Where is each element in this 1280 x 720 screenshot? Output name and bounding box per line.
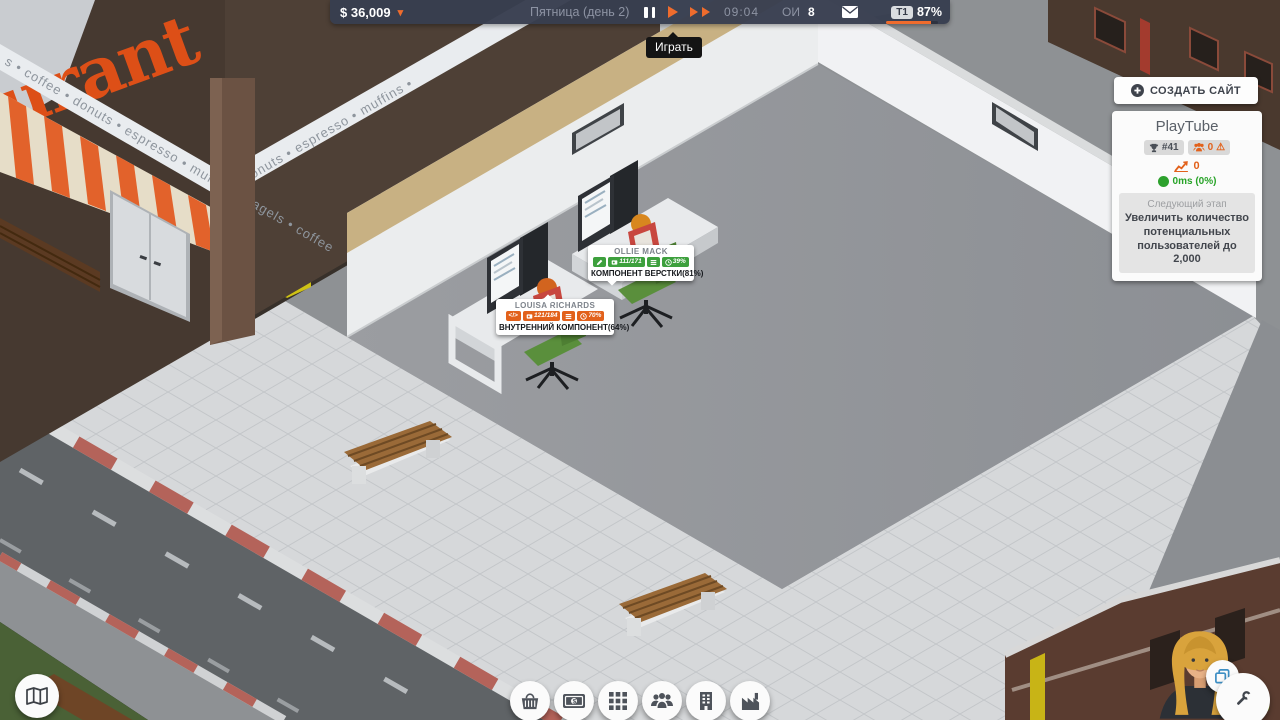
create-site-button[interactable]: СОЗДАТЬ САЙТ xyxy=(1114,77,1258,104)
users-badge: 0 ⚠ xyxy=(1188,140,1231,155)
tier-indicator[interactable]: T1 87% xyxy=(891,0,942,24)
tooltip-arrow xyxy=(668,32,678,37)
code-icon: </> xyxy=(506,311,521,321)
plus-circle-icon xyxy=(1131,84,1144,97)
shop-basket-button[interactable] xyxy=(510,681,550,720)
team-icon xyxy=(650,692,674,710)
building-icon xyxy=(697,691,715,711)
speed-clock-badge: 39% xyxy=(662,257,689,267)
money-display[interactable]: $ 36,009 ▾ xyxy=(340,0,403,24)
chart-icon xyxy=(1174,161,1189,172)
status-dot-icon xyxy=(1158,176,1169,187)
top-bar: $ 36,009 ▾ Пятница (день 2) 09:04 ОИ8 T1… xyxy=(330,0,950,24)
bottom-toolbar: $ xyxy=(510,681,770,720)
map-button[interactable] xyxy=(15,674,59,718)
tier-badge: T1 xyxy=(891,6,913,19)
employee-label-ollie[interactable]: OLLIE MACK 111/171 39% КОМПОНЕНТ ВЕРСТКИ… xyxy=(588,245,694,281)
wrench-icon xyxy=(1228,685,1258,715)
finances-button[interactable]: $ xyxy=(554,681,594,720)
trophy-icon xyxy=(1149,143,1159,153)
speed-clock-badge: 70% xyxy=(577,311,604,321)
rank-badge: #41 xyxy=(1144,140,1184,155)
game-scene[interactable]: • donuts • espresso • muffins • urant s … xyxy=(0,0,1280,720)
team-button[interactable] xyxy=(642,681,682,720)
play-tooltip: Играть xyxy=(646,37,702,58)
chevron-down-icon: ▾ xyxy=(398,6,404,19)
components-progress-badge: 111/171 xyxy=(608,257,645,267)
settings-wrench-button[interactable] xyxy=(1216,673,1270,720)
mail-icon xyxy=(842,6,858,18)
site-name: PlayTube xyxy=(1112,118,1262,135)
next-stage-box: Следующий этап Увеличить количество поте… xyxy=(1119,193,1255,273)
hosting-status: 0ms (0%) xyxy=(1112,176,1262,187)
svg-text:$: $ xyxy=(573,698,577,705)
employee-name: LOUISA RICHARDS xyxy=(499,301,611,310)
employee-task: ВНУТРЕННИЙ КОМПОНЕНТ(64%) xyxy=(499,323,611,332)
inventory-grid-button[interactable] xyxy=(598,681,638,720)
map-icon xyxy=(25,686,49,706)
game-date: Пятница (день 2) xyxy=(530,0,629,24)
production-button[interactable] xyxy=(730,681,770,720)
building-button[interactable] xyxy=(686,681,726,720)
game-clock: 09:04 xyxy=(724,0,759,24)
warning-icon: ⚠ xyxy=(1216,142,1225,153)
employee-name: OLLIE MACK xyxy=(591,247,691,256)
tier-progressbar xyxy=(886,21,938,24)
play-button[interactable] xyxy=(668,0,678,24)
fast-forward-button[interactable] xyxy=(690,0,710,24)
pause-button[interactable] xyxy=(644,0,655,24)
employee-task: КОМПОНЕНТ ВЕРСТКИ(81%) xyxy=(591,269,691,278)
queue-list-icon xyxy=(647,257,660,267)
mail-button[interactable] xyxy=(842,0,858,24)
basket-icon xyxy=(519,691,541,711)
design-pencil-icon xyxy=(593,257,606,267)
research-points[interactable]: ОИ8 xyxy=(782,0,815,24)
traffic-trend: 0 xyxy=(1112,160,1262,172)
grid-icon xyxy=(608,691,628,711)
queue-list-icon xyxy=(562,311,575,321)
users-icon xyxy=(1193,143,1205,152)
banknote-icon: $ xyxy=(562,693,586,709)
site-card[interactable]: PlayTube #41 0 ⚠ 0 0ms xyxy=(1112,111,1262,281)
employee-label-louisa[interactable]: LOUISA RICHARDS </> 121/184 70% ВНУТРЕНН… xyxy=(496,299,614,335)
game-viewport[interactable]: • donuts • espresso • muffins • urant s … xyxy=(0,0,1280,720)
components-progress-badge: 121/184 xyxy=(523,311,561,321)
tier-percent: 87% xyxy=(917,5,942,19)
factory-icon xyxy=(740,692,761,711)
